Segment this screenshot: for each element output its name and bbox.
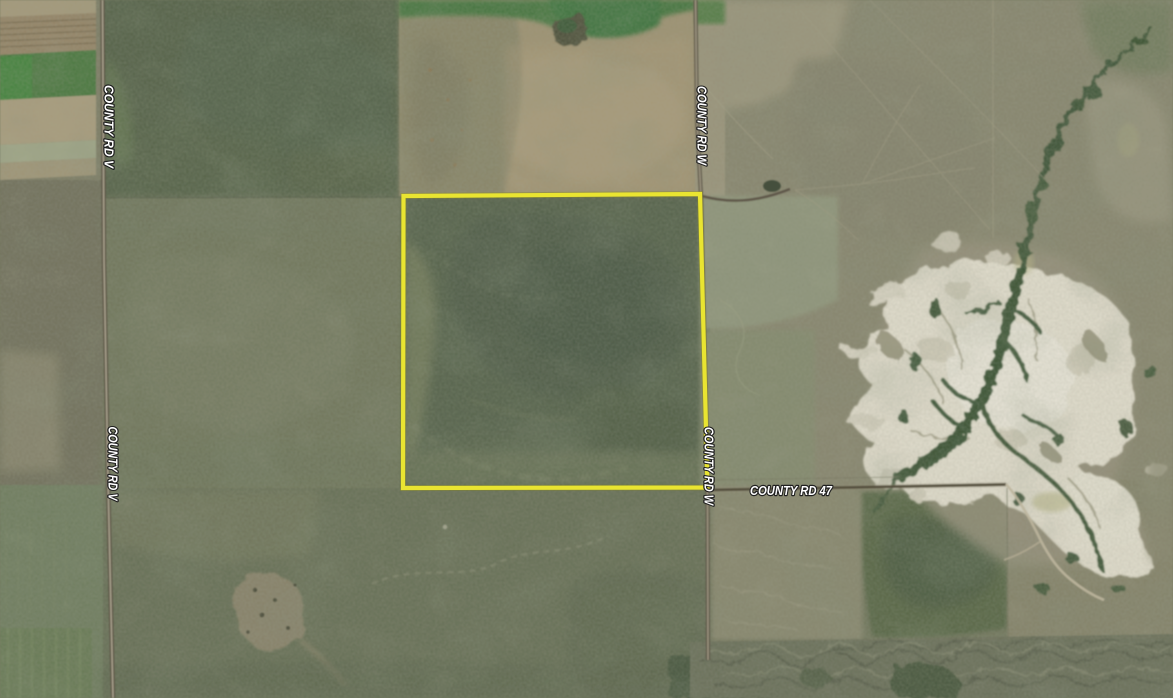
svg-text:COUNTY RD W: COUNTY RD W — [695, 86, 710, 166]
svg-text:COUNTY RD V: COUNTY RD V — [106, 427, 121, 502]
svg-text:COUNTY RD V: COUNTY RD V — [102, 85, 117, 169]
svg-text:COUNTY RD 47: COUNTY RD 47 — [750, 483, 833, 498]
svg-text:COUNTY RD W: COUNTY RD W — [702, 427, 717, 506]
